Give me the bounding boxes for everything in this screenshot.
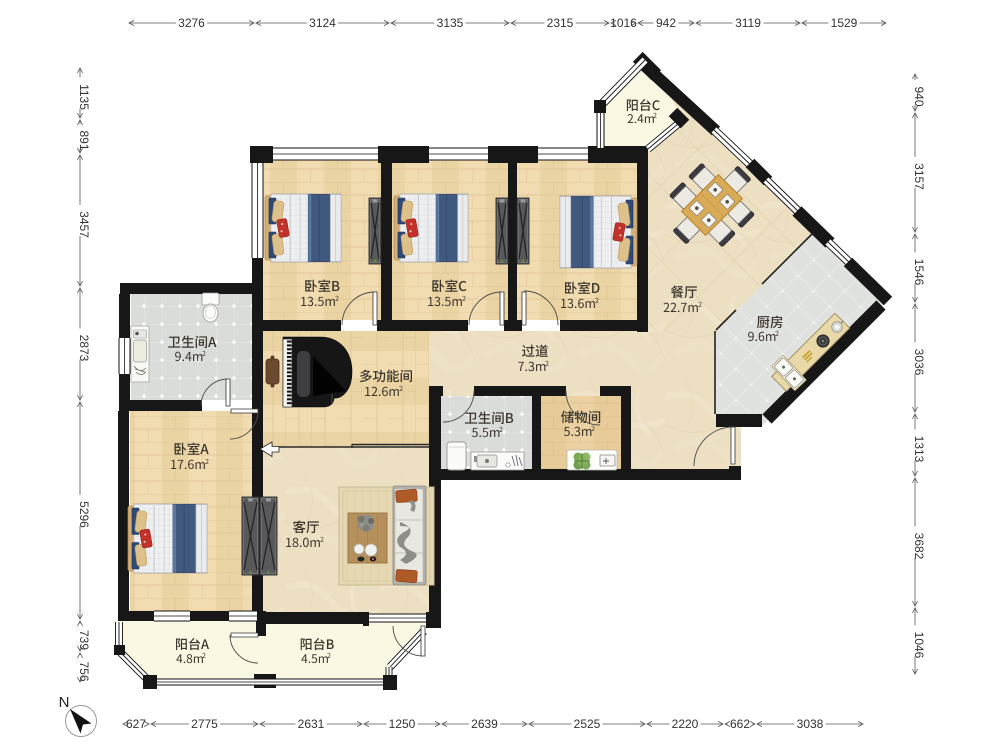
svg-text:1313: 1313: [912, 436, 926, 463]
svg-text:2639: 2639: [471, 717, 498, 731]
svg-text:756: 756: [77, 661, 91, 681]
svg-text:1046: 1046: [912, 632, 926, 659]
svg-text:2873: 2873: [77, 335, 91, 362]
svg-text:N: N: [59, 694, 70, 711]
svg-text:2220: 2220: [672, 717, 699, 731]
svg-text:3276: 3276: [178, 16, 205, 30]
svg-text:2775: 2775: [191, 717, 218, 731]
svg-text:942: 942: [656, 16, 676, 30]
svg-text:1546: 1546: [912, 259, 926, 286]
svg-text:1529: 1529: [831, 16, 858, 30]
svg-text:1250: 1250: [389, 717, 416, 731]
svg-text:940: 940: [912, 86, 926, 106]
svg-text:3135: 3135: [437, 16, 464, 30]
svg-text:3038: 3038: [797, 717, 824, 731]
svg-text:3036: 3036: [912, 349, 926, 376]
svg-text:3124: 3124: [309, 16, 336, 30]
svg-text:1016: 1016: [610, 16, 637, 30]
svg-text:891: 891: [77, 130, 91, 150]
svg-text:2525: 2525: [574, 717, 601, 731]
svg-text:662: 662: [730, 717, 750, 731]
svg-text:1135: 1135: [77, 84, 91, 110]
svg-text:2315: 2315: [547, 16, 574, 30]
svg-text:3682: 3682: [912, 533, 926, 560]
svg-text:3119: 3119: [735, 16, 761, 30]
svg-text:5296: 5296: [77, 501, 91, 528]
svg-text:2631: 2631: [298, 717, 325, 731]
svg-text:3457: 3457: [77, 211, 91, 238]
svg-text:739: 739: [77, 630, 91, 650]
svg-text:627: 627: [126, 717, 146, 731]
svg-text:3157: 3157: [912, 163, 926, 190]
